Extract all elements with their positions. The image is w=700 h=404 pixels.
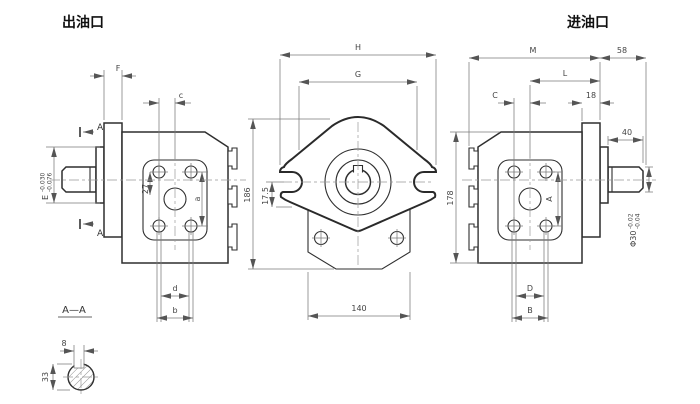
dim-58-label: 58	[617, 46, 627, 55]
dim-186-label: 186	[243, 187, 252, 202]
dim-phi30-label: Φ30	[629, 231, 638, 247]
dim-140-label: 140	[351, 304, 366, 313]
port-boss	[469, 224, 478, 250]
dim-E-label: E	[41, 195, 50, 200]
dim-33-label: 33	[41, 372, 50, 382]
port-boss	[228, 186, 237, 207]
dim-D-label: D	[527, 284, 533, 293]
dim-H-label: H	[355, 43, 361, 52]
outlet-port-title: 出油口	[62, 14, 104, 31]
dim-L-label: L	[563, 69, 568, 78]
dim-E-lower-tol: -0.076	[47, 172, 54, 192]
dim-b-label: b	[172, 306, 177, 315]
section-arrow-label-bottom: A	[97, 229, 104, 239]
inlet-port-title: 进油口	[567, 14, 609, 31]
port-boss	[228, 148, 237, 169]
port-boss	[469, 186, 478, 207]
dim-8-label: 8	[61, 339, 66, 348]
dim-18-label: 18	[586, 91, 596, 100]
left-pilot-boss	[96, 147, 104, 203]
section-title: A—A	[62, 305, 86, 316]
dim-a-label: a	[193, 196, 202, 201]
dim-d-label: d	[172, 284, 177, 293]
pump-dimension-drawing: 出油口 进油口 F c d b 27 a E -0.030 -0.076 A A…	[0, 0, 700, 400]
dim-c-label: c	[179, 91, 183, 100]
dim-phi30-lower-tol: -0.04	[635, 213, 642, 229]
dim-17-5-label: 17.5	[261, 187, 270, 205]
dim-27-label: 27	[141, 184, 150, 194]
dim-G-label: G	[355, 70, 361, 79]
dim-E-upper-tol: -0.030	[40, 172, 47, 192]
port-boss	[469, 148, 478, 169]
dim-B-label: B	[527, 306, 533, 315]
dim-178-label: 178	[446, 190, 455, 205]
dim-E-tolerance: E -0.030 -0.076	[40, 172, 54, 200]
dim-A-label: A	[545, 196, 554, 202]
dim-phi30-tolerance: Φ30 -0.02 -0.04	[628, 213, 642, 247]
dim-F-label: F	[116, 64, 121, 73]
dim-C-label: C	[492, 91, 498, 100]
right-side-view	[469, 123, 643, 263]
section-arrow-label-top: A	[97, 123, 104, 133]
right-pilot-boss	[600, 147, 608, 203]
dim-40-label: 40	[622, 128, 632, 137]
dim-phi30-upper-tol: -0.02	[628, 213, 635, 229]
drawing-page: 出油口 进油口 F c d b 27 a E -0.030 -0.076 A A…	[0, 0, 700, 400]
right-shaft	[608, 167, 643, 192]
dim-M-label: M	[530, 46, 537, 55]
left-shaft	[62, 167, 96, 192]
port-boss	[228, 224, 237, 250]
